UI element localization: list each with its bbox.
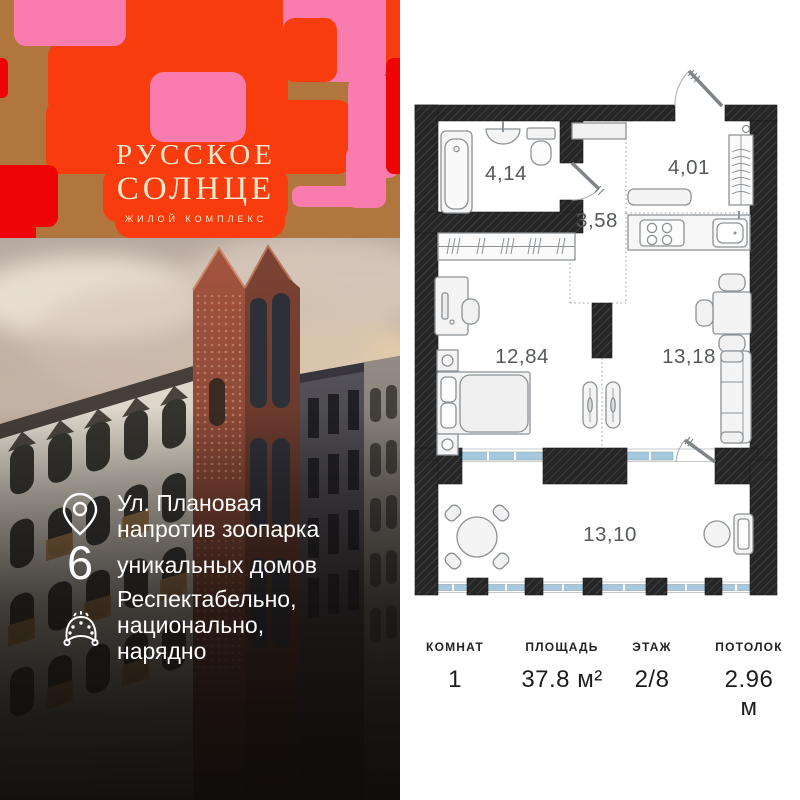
stat-area: ПЛОЩАДЬ 37.8 м² — [521, 640, 602, 694]
bench — [628, 189, 691, 205]
stat-floor: ЭТАЖ 2/8 — [632, 640, 671, 694]
building-photo: Ул. Плановая напротив зоопарка 6 уникаль… — [0, 238, 400, 800]
stat-rooms-label: КОМНАТ — [426, 640, 484, 654]
room-label-balcony: 13,10 — [583, 523, 637, 546]
location-pin-icon — [60, 490, 117, 537]
dining-table — [696, 274, 751, 352]
kokoshnik-icon — [60, 607, 117, 649]
balcony-table-set — [443, 503, 511, 571]
closet-rail — [438, 233, 575, 260]
room-label-hallway: 4,01 — [668, 156, 710, 179]
stat-ceiling-value: 2.96 м — [715, 666, 783, 722]
brand-title: РУССКОЕ СОЛНЦЕ — [0, 141, 392, 206]
right-panel: 4,14 4,01 3,58 12,84 13,18 13,10 КОМНАТ … — [400, 0, 800, 800]
feature-location: Ул. Плановая напротив зоопарка — [60, 490, 319, 542]
bathroom-door — [572, 163, 604, 200]
feature-houses-text: уникальных домов — [117, 552, 317, 578]
room-label-bathroom: 4,14 — [485, 162, 527, 185]
feature-location-text: Ул. Плановая напротив зоопарка — [117, 490, 319, 542]
balcony-armchair-set — [704, 514, 753, 554]
brand-block: РУССКОЕ СОЛНЦЕ ЖИЛОЙ КОМПЛЕКС — [0, 0, 400, 238]
nightstand-bottom — [437, 434, 458, 455]
nightstand-top — [437, 350, 458, 371]
stove — [640, 220, 684, 246]
feature-houses: 6 уникальных домов — [60, 543, 317, 583]
room-label-corridor: 3,58 — [576, 209, 618, 232]
feature-style-text: Респектабельно, национально, нарядно — [117, 586, 297, 664]
stat-rooms: КОМНАТ 1 — [426, 640, 484, 694]
toilet — [527, 128, 555, 165]
brand-title-line1: РУССКОЕ — [0, 141, 392, 170]
stat-rooms-value: 1 — [426, 666, 484, 694]
stat-ceiling: ПОТОЛОК 2.96 м — [715, 640, 783, 722]
page: РУССКОЕ СОЛНЦЕ ЖИЛОЙ КОМПЛЕКС — [0, 0, 800, 800]
sink — [486, 121, 520, 144]
sofa — [721, 351, 751, 443]
stat-area-label: ПЛОЩАДЬ — [521, 640, 602, 654]
stat-floor-value: 2/8 — [632, 666, 671, 694]
numeral-six: 6 — [60, 543, 117, 583]
feature-style: Респектабельно, национально, нарядно — [60, 586, 297, 664]
bathtub — [441, 131, 472, 213]
hall-cabinet — [572, 123, 626, 139]
desk — [435, 277, 479, 335]
stat-area-value: 37.8 м² — [521, 666, 602, 694]
kitchen-counter — [628, 211, 750, 250]
entrance-door — [675, 70, 722, 106]
stat-floor-label: ЭТАЖ — [632, 640, 671, 654]
left-panel: РУССКОЕ СОЛНЦЕ ЖИЛОЙ КОМПЛЕКС — [0, 0, 400, 800]
hall-wardrobe — [729, 126, 753, 206]
brand-subtitle: ЖИЛОЙ КОМПЛЕКС — [0, 214, 392, 224]
brand-title-line2: СОЛНЦЕ — [0, 173, 392, 206]
room-label-living: 13,18 — [662, 345, 716, 368]
room-label-bedroom: 12,84 — [495, 345, 549, 368]
bed — [437, 372, 530, 434]
stat-ceiling-label: ПОТОЛОК — [715, 640, 783, 654]
